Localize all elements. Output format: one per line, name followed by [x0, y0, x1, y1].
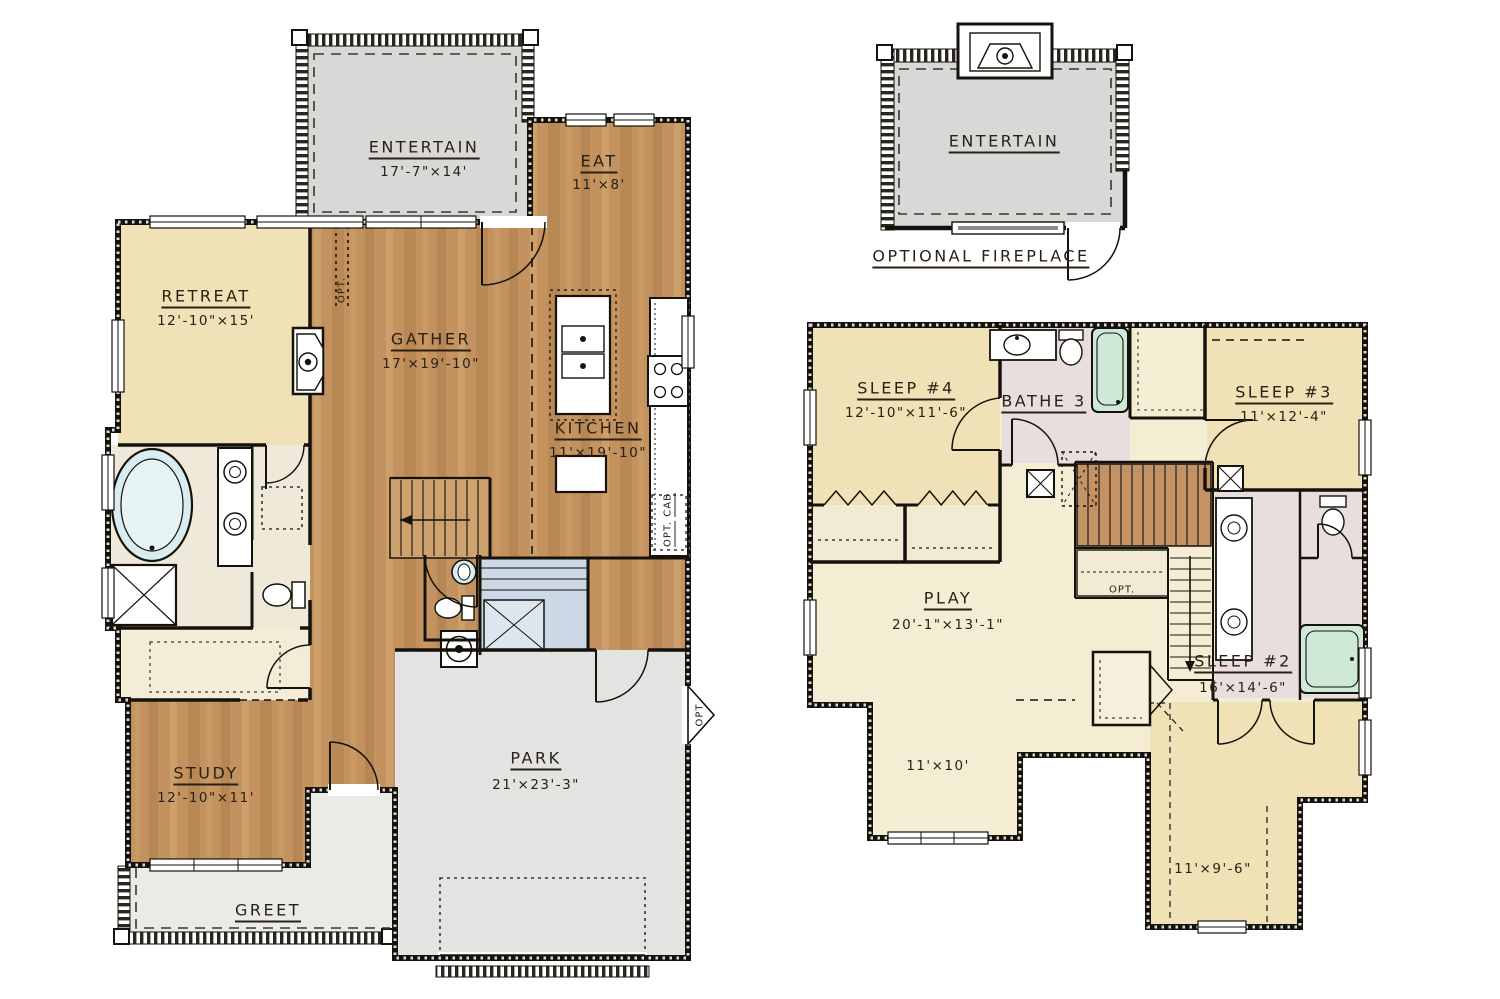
- sleep3-dims: 11'×12'-4": [1240, 409, 1328, 425]
- bathe3-vanity-icon: [990, 330, 1056, 360]
- sleep4-label: SLEEP #4: [857, 379, 955, 398]
- gather-dims: 17'×19'-10": [382, 356, 480, 372]
- bath2-vanity-icon: [1216, 498, 1252, 660]
- study-label: STUDY: [173, 764, 238, 783]
- gather-label: GATHER: [391, 330, 471, 349]
- floor-plan-drawing: [0, 0, 1500, 999]
- opt-cab-label: OPT. CAB: [663, 493, 674, 547]
- refrigerator-icon: [556, 456, 606, 492]
- play-dims: 20'-1"×13'-1": [892, 617, 1004, 633]
- sleep2-floor: [1150, 702, 1363, 925]
- sleep2-label: SLEEP #2: [1194, 652, 1292, 671]
- linen-closet-icon: [1027, 470, 1054, 497]
- entertain-dims: 17'-7"×14': [380, 164, 468, 180]
- bath2-linen-icon: [1218, 466, 1243, 491]
- closet-floor: [118, 628, 310, 700]
- floor-plan-page: ENTERTAIN 17'-7"×14' EAT 11'×8' RETREAT …: [0, 0, 1500, 999]
- sleep4-dims: 12'-10"×11'-6": [845, 405, 967, 421]
- park-dims: 21'×23'-3": [492, 777, 580, 793]
- opt-door-label: OPT: [695, 703, 706, 726]
- powder-sink-icon: [452, 560, 476, 584]
- kitchen-dims: 11'×19'-10": [549, 445, 647, 461]
- retreat-dims: 12'-10"×15': [157, 313, 255, 329]
- eat-label: EAT: [580, 152, 617, 171]
- shower-icon: [112, 565, 176, 625]
- opt-wall-label: OPT.: [337, 277, 348, 303]
- bathe3-tub-icon: [1092, 328, 1128, 412]
- kitchen-label: KITCHEN: [555, 419, 642, 438]
- double-vanity-icon: [218, 448, 252, 566]
- bath2-tub-icon: [1300, 625, 1364, 693]
- eat-dims: 11'×8': [572, 177, 626, 193]
- bathe3-toilet-icon: [1059, 330, 1083, 365]
- toilet-icon: [263, 582, 305, 608]
- greet-label: GREET: [235, 901, 301, 920]
- optional-fireplace-caption: OPTIONAL FIREPLACE: [872, 247, 1089, 266]
- fireplace-icon: [293, 328, 323, 394]
- stairs-up: [390, 478, 490, 558]
- opt-stairs-label: OPT.: [1109, 585, 1135, 596]
- kitchen-sink-icon: [562, 326, 604, 378]
- bath2-toilet-icon: [1320, 496, 1346, 535]
- study-dims: 12'-10"×11': [157, 790, 255, 806]
- powder-toilet-icon: [435, 596, 474, 620]
- play-area-dims: 11'×10': [906, 758, 970, 774]
- kitchen-island: [550, 290, 616, 420]
- sleep2-dims: 16'×14'-6": [1199, 680, 1287, 696]
- retreat-label: RETREAT: [161, 287, 250, 306]
- play-label: PLAY: [924, 589, 972, 608]
- bathe3-label: BATHE 3: [1001, 392, 1086, 411]
- entertain-deck: [292, 30, 538, 225]
- fp-entertain-label: ENTERTAIN: [949, 132, 1060, 151]
- sleep2-area-dims: 11'×9'-6": [1174, 861, 1252, 877]
- optional-fireplace-icon: [958, 24, 1052, 78]
- park-label: PARK: [510, 749, 561, 768]
- retreat-floor: [118, 222, 310, 445]
- garage-floor: [395, 650, 688, 958]
- entertain-label: ENTERTAIN: [369, 138, 480, 157]
- bathtub-icon: [112, 449, 192, 561]
- sleep2-closet: [1093, 652, 1150, 725]
- sleep3-label: SLEEP #3: [1235, 383, 1333, 402]
- deck-slider-door: [952, 222, 1064, 234]
